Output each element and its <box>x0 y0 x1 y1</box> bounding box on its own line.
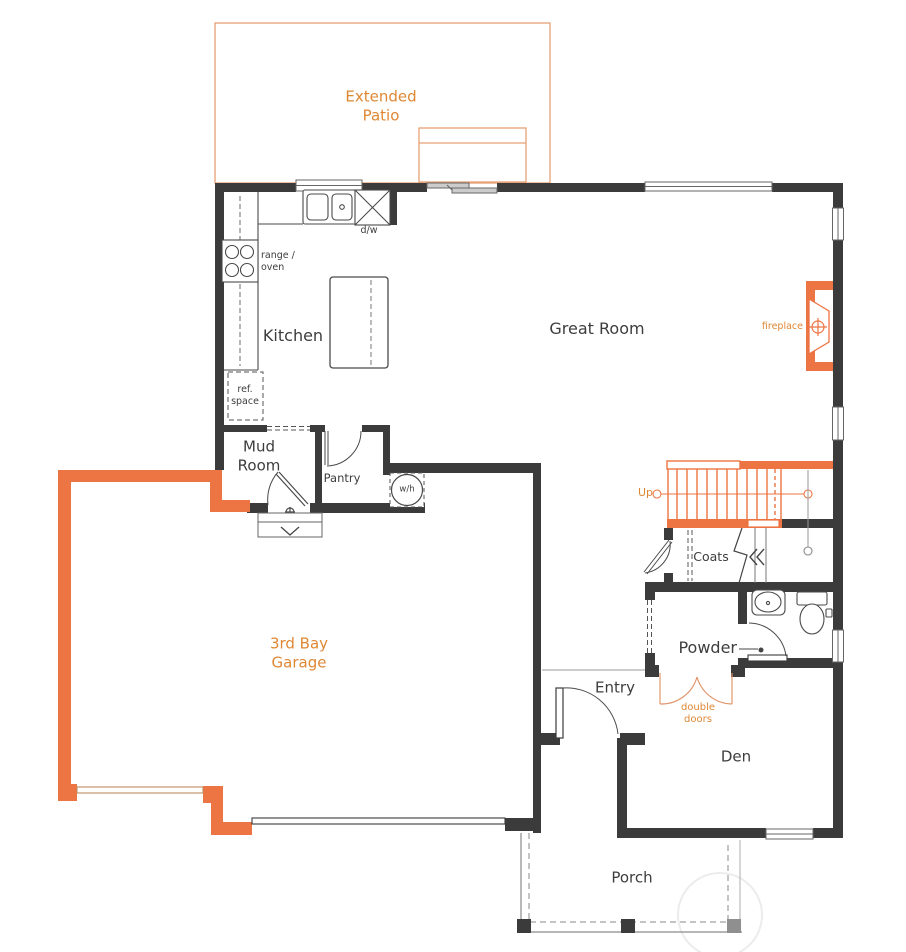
great-room-label: Great Room <box>549 319 644 339</box>
garage-door <box>77 787 203 793</box>
powder-sink <box>752 590 785 615</box>
toilet <box>797 592 832 634</box>
range-oven-label: range / oven <box>261 250 311 274</box>
coats-door <box>644 540 672 574</box>
powder-door <box>748 623 787 661</box>
kitchen-island <box>330 277 388 368</box>
pantry-door <box>325 431 361 466</box>
mud-room-stoop <box>258 513 322 537</box>
floor-plan: Extended Patio Kitchen Great Room firepl… <box>0 0 906 952</box>
window <box>833 208 844 240</box>
garage-walls <box>58 470 252 835</box>
coats-closet-rod <box>688 530 692 581</box>
window <box>645 182 772 191</box>
extended-patio-label: Extended Patio <box>326 87 436 125</box>
garage-door <box>252 818 505 824</box>
double-doors-label: double doors <box>671 702 725 726</box>
kitchen-sink <box>303 190 357 224</box>
den-label: Den <box>721 748 751 767</box>
porch-corner-post <box>727 919 741 933</box>
stair-down-chevron <box>750 549 764 565</box>
fireplace <box>806 281 833 371</box>
fireplace-label: fireplace <box>743 321 803 333</box>
break-line <box>734 528 747 583</box>
dishwasher-label: d/w <box>360 225 377 237</box>
range-oven <box>222 240 258 282</box>
window <box>833 407 844 440</box>
window <box>833 630 844 662</box>
watermark <box>678 873 762 952</box>
coats-label: Coats <box>693 549 728 565</box>
floor-plan-drawing <box>0 0 906 952</box>
garage-doors <box>77 787 505 824</box>
porch-post <box>621 919 635 933</box>
double-doors <box>660 673 732 704</box>
porch-outline <box>517 833 762 952</box>
powder-leader <box>739 648 764 653</box>
walls <box>215 183 843 838</box>
garage-label: 3rd Bay Garage <box>259 634 339 672</box>
water-heater-label: w/h <box>399 485 414 496</box>
window <box>766 829 813 839</box>
porch-post <box>517 919 531 933</box>
mud-room-door <box>268 472 308 517</box>
pantry-label: Pantry <box>324 471 361 485</box>
dishwasher <box>355 190 390 225</box>
kitchen-label: Kitchen <box>263 326 323 346</box>
mud-room-label: Mud Room <box>227 437 291 475</box>
sliding-door <box>427 183 497 193</box>
entry-label: Entry <box>595 679 635 698</box>
up-label: Up <box>628 486 653 500</box>
porch-label: Porch <box>611 869 652 888</box>
ref-space-label: ref. space <box>225 384 265 408</box>
powder-label: Powder <box>667 638 737 658</box>
window <box>296 180 362 191</box>
